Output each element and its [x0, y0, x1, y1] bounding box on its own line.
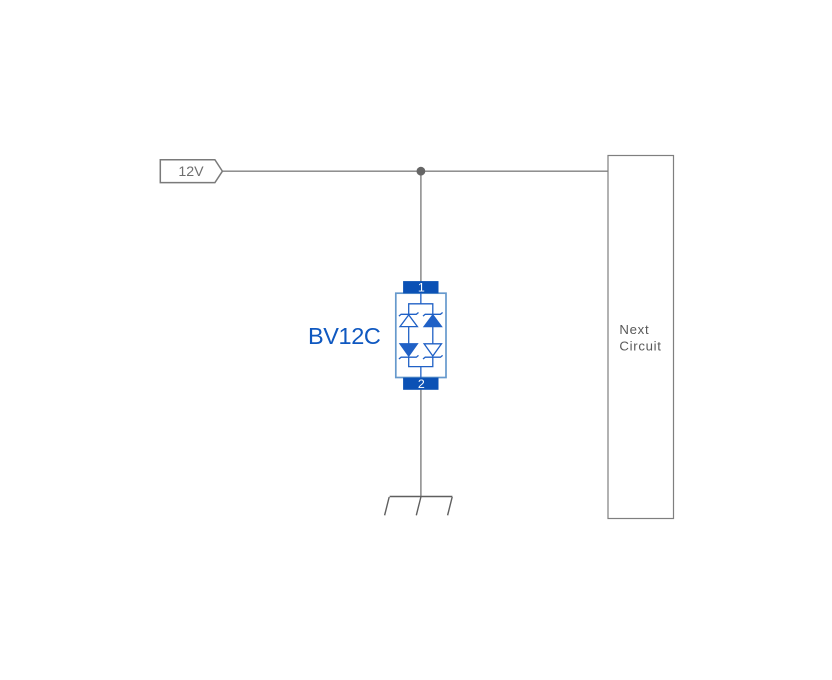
svg-text:2: 2: [418, 377, 425, 391]
svg-text:Circuit: Circuit: [619, 339, 661, 354]
svg-text:Next: Next: [619, 322, 649, 337]
svg-text:BV12C: BV12C: [308, 323, 381, 349]
svg-text:1: 1: [418, 281, 425, 295]
svg-text:12V: 12V: [178, 164, 204, 180]
